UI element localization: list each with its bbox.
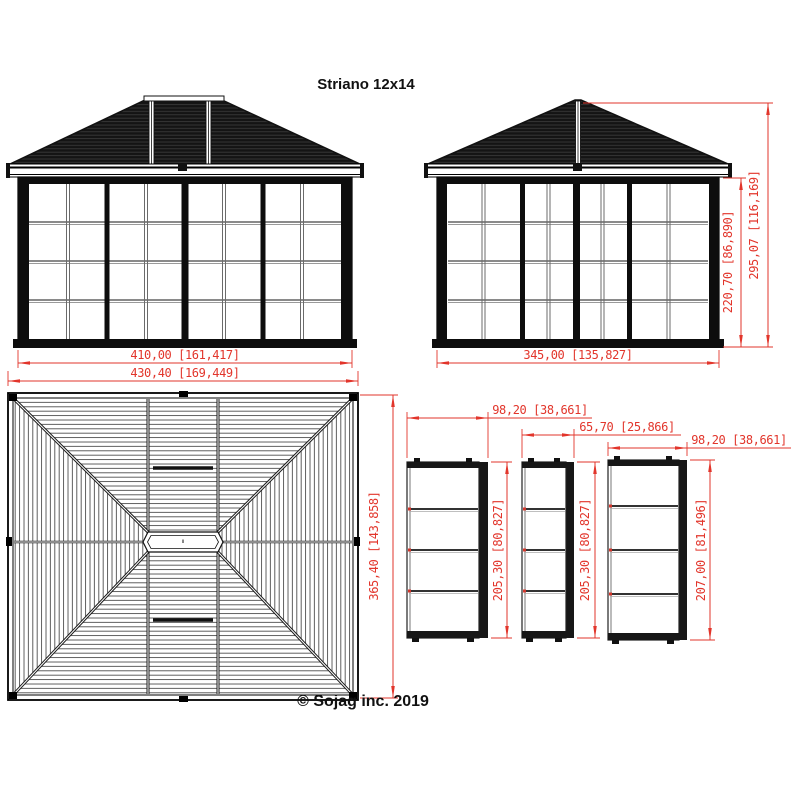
dim-panel3-width: 98,20 [38,661] xyxy=(684,433,794,447)
dim-panel1-width: 98,20 [38,661] xyxy=(485,403,595,417)
dim-roof-plan-depth: 365,40 [143,858] xyxy=(367,481,381,611)
dim-front-overall-width: 430,40 [169,449] xyxy=(85,366,285,380)
dim-side-wall-height: 220,70 [86,890] xyxy=(721,197,735,327)
copyright: © Sojag inc. 2019 xyxy=(263,693,463,711)
dim-side-wall-width: 345,00 [135,827] xyxy=(478,348,678,362)
roof-plan-view xyxy=(6,391,398,702)
drawing-linework xyxy=(0,0,800,800)
panel-3 xyxy=(608,456,687,644)
dim-side-overall-height: 295,07 [116,169] xyxy=(747,160,761,290)
peak-vent xyxy=(143,532,223,552)
dim-front-wall-width: 410,00 [161,417] xyxy=(85,348,285,362)
dim-panel2-width: 65,70 [25,866] xyxy=(572,420,682,434)
front-cornice xyxy=(6,163,364,178)
front-wall xyxy=(13,177,357,348)
drawing-title: Striano 12x14 xyxy=(266,76,466,93)
dim-panel1-height: 205,30 [80,827] xyxy=(491,485,505,615)
side-roof xyxy=(428,100,728,164)
panel-2 xyxy=(522,458,574,642)
panel-1 xyxy=(407,458,488,642)
dim-panel3-height: 207,00 [81,496] xyxy=(694,485,708,615)
dim-panel2-height: 205,30 [80,827] xyxy=(578,485,592,615)
front-roof xyxy=(10,96,360,164)
side-cornice xyxy=(424,163,732,178)
drawing-sheet: Striano 12x14 410,00 [161,417] 430,40 [1… xyxy=(0,0,800,800)
front-elevation-view xyxy=(6,96,364,386)
side-wall xyxy=(432,177,724,348)
